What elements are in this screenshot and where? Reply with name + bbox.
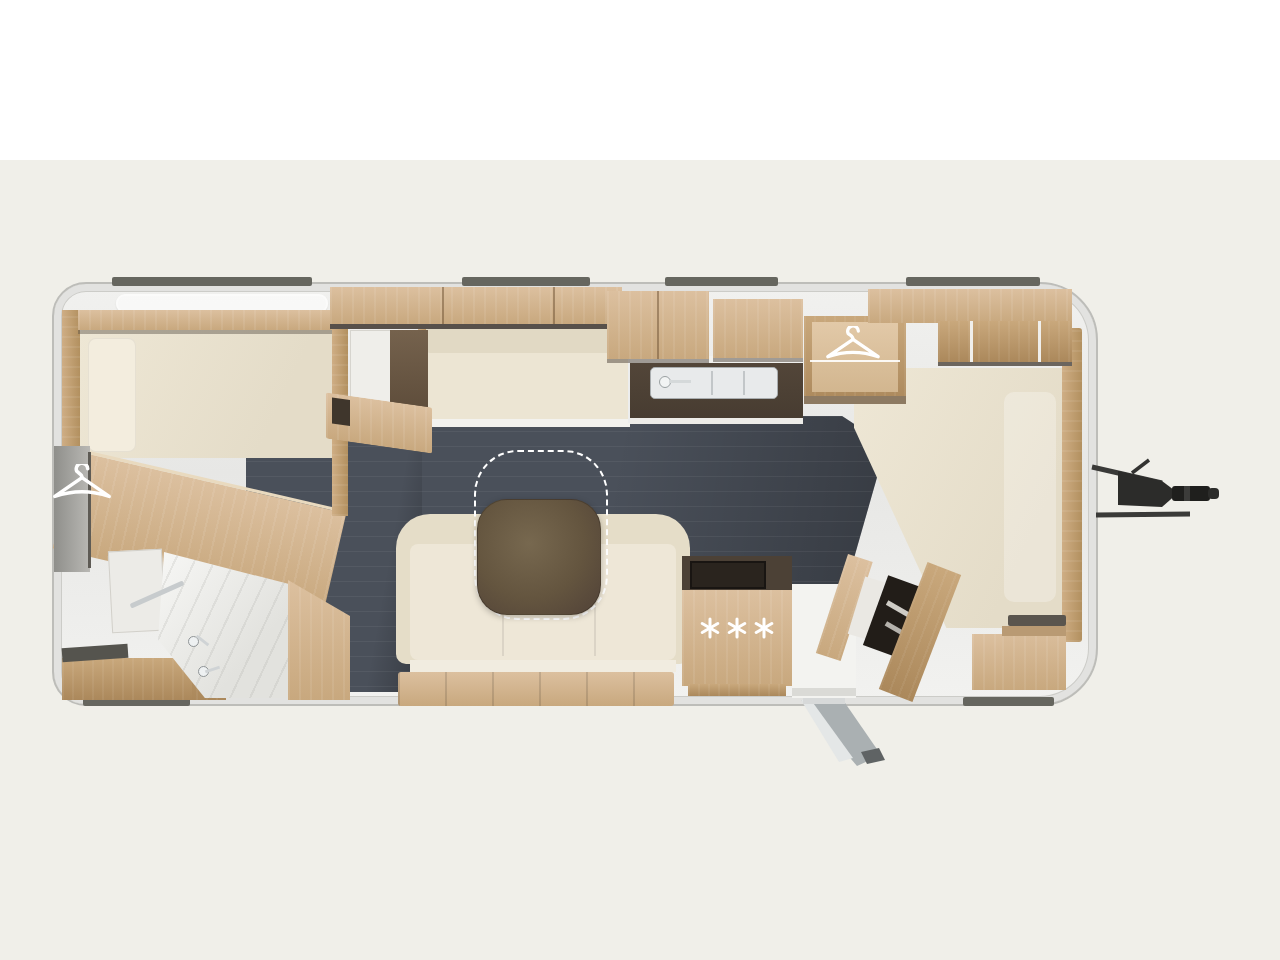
bathroom-bench: [62, 658, 192, 700]
front-desk-strip: [1008, 615, 1066, 626]
rub-rail-top-3: [665, 277, 778, 286]
hanger-icon: [48, 464, 116, 510]
rear-bed: [80, 330, 334, 458]
rear-overhead-cabinet: [78, 310, 334, 330]
hob: [690, 561, 766, 589]
faucet-icon: [198, 666, 209, 677]
fridge-cabinet: [682, 556, 792, 698]
ramp-step-edge: [803, 698, 845, 704]
rub-rail-top-4: [906, 277, 1040, 286]
floorplan-canvas: [0, 0, 1280, 960]
side-bench-backrest: [426, 329, 630, 355]
sofa-wood-base: [398, 672, 674, 706]
faucet-icon: [188, 636, 199, 647]
coupling-head: [1208, 488, 1219, 499]
handbrake-lever: [1132, 460, 1149, 473]
front-cabinet-corner: [1002, 626, 1066, 690]
kitchen-sink: [650, 367, 778, 399]
coupling-shaft: [1172, 486, 1210, 501]
bed-steps-cabinet: [846, 552, 964, 700]
coupling-body: [1118, 471, 1178, 507]
cabinet-top-band: [1002, 626, 1066, 636]
hanger-icon: [822, 326, 884, 370]
side-bench-seat: [426, 353, 630, 419]
fridge-plinth: [688, 684, 786, 696]
fridge-worktop: [682, 556, 792, 590]
tow-hitch: [1088, 455, 1222, 525]
sofa-front-edge: [410, 660, 676, 672]
side-bench: [426, 329, 630, 427]
front-bed-pillow: [1004, 392, 1056, 602]
rub-rail-top-2: [462, 277, 590, 286]
lounge-table: [477, 499, 601, 615]
rub-rail-bottom-3: [963, 697, 1054, 706]
kitchen-overhead-cabinet-left: [607, 291, 709, 359]
counter-bottom-edge: [630, 418, 803, 424]
front-bed-headboard-strip: [1062, 328, 1082, 642]
kitchen-overhead-cabinet-right: [713, 299, 803, 358]
front-overhead-cabinet: [938, 321, 1072, 362]
front-wardrobe-shadow: [804, 396, 906, 404]
snowflake-icons: [696, 614, 778, 642]
rub-rail-top-1: [112, 277, 312, 286]
drawbar-bar-bottom: [1096, 514, 1190, 515]
side-bench-front-edge: [426, 419, 630, 427]
desk-slot: [332, 397, 350, 426]
entry-step-ramp: [795, 698, 890, 772]
dinette-overhead-cabinet: [330, 287, 622, 324]
sink-faucet-spout: [669, 380, 691, 383]
front-overhead-band: [868, 289, 1072, 323]
rear-bed-pillow: [88, 338, 136, 452]
coupling-collar: [1184, 486, 1190, 501]
